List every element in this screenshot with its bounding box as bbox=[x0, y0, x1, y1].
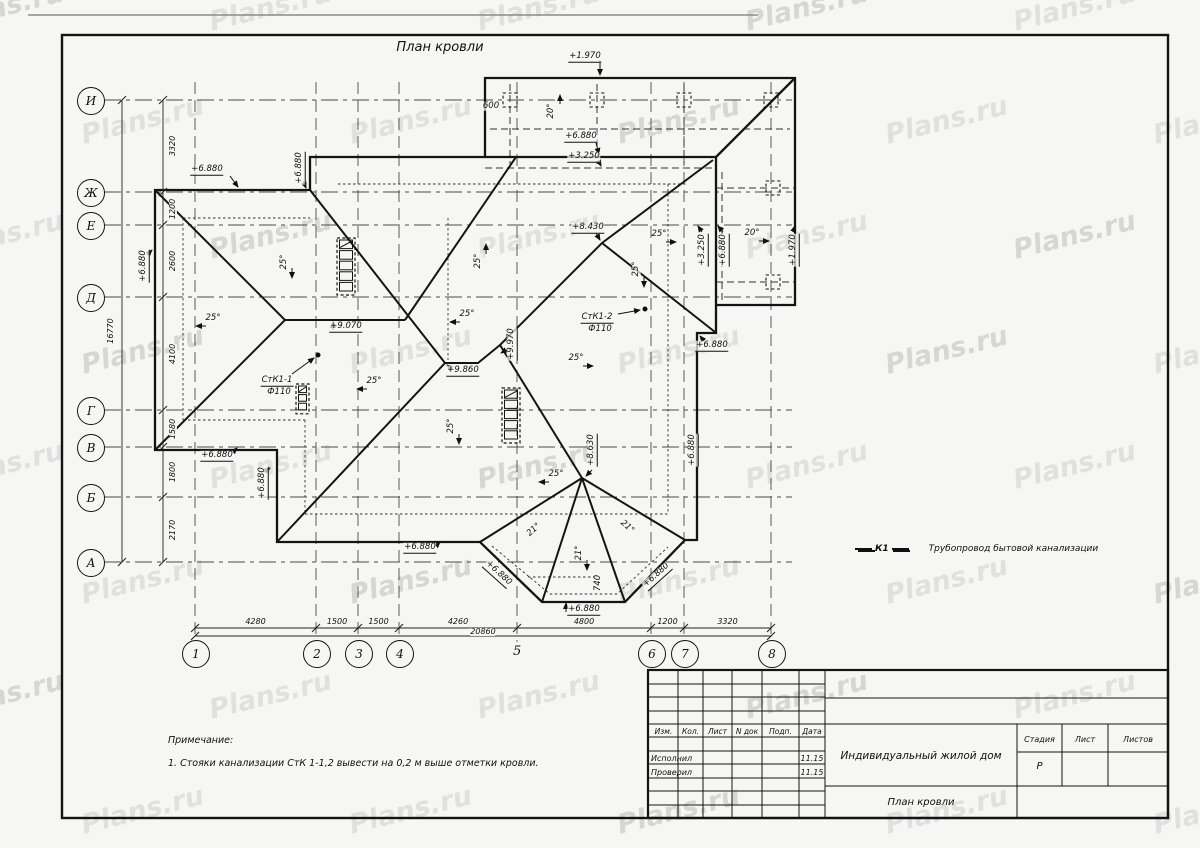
dim-col-1200: 1200 bbox=[657, 618, 677, 626]
tb-role-proveril: Проверил bbox=[651, 768, 692, 777]
notes-heading: Примечание: bbox=[168, 735, 588, 746]
axis-col-bubble-1: 1 bbox=[182, 640, 210, 668]
axis-row-bubble-Б: Б bbox=[77, 484, 105, 512]
roof-label-2-20°: 20° bbox=[547, 103, 556, 118]
axis-row-bubble-Е: Е bbox=[77, 212, 105, 240]
tb-date-2: 11.15 bbox=[799, 768, 825, 777]
roof-label-28-+1.970: +1.970 bbox=[789, 233, 800, 266]
roof-label-9-25°: 25° bbox=[280, 254, 289, 269]
roof-label-13-Ф110: Ф110 bbox=[267, 388, 291, 397]
tb-col-list: Лист bbox=[703, 727, 732, 736]
wall-dashed-lines bbox=[183, 184, 688, 594]
tb-sheets-header: Листов bbox=[1108, 735, 1168, 744]
axis-col-bubble-3: 3 bbox=[345, 640, 373, 668]
dim-row-1200: 1200 bbox=[169, 198, 177, 218]
terrace-columns bbox=[503, 93, 780, 289]
roof-label-12-СтК1-1: СтК1-1 bbox=[261, 376, 294, 387]
dim-col-4260: 4260 bbox=[448, 618, 468, 626]
roof-label-21-Ф110: Ф110 bbox=[588, 325, 612, 334]
roof-plan-drawing bbox=[0, 0, 1200, 848]
axis-row-bubble-В: В bbox=[77, 434, 105, 462]
roof-label-38-+6.880: +6.880 bbox=[567, 605, 600, 616]
tb-sheet-header: Лист bbox=[1062, 735, 1108, 744]
roof-label-22-+8.430: +8.430 bbox=[571, 223, 604, 234]
roof-label-29-+6.880: +6.880 bbox=[695, 341, 728, 352]
notes-block: Примечание: 1. Стояки канализации СтК 1-… bbox=[168, 735, 588, 769]
dim-col-1500: 1500 bbox=[368, 618, 388, 626]
tb-project-name: Индивидуальный жилой дом bbox=[825, 750, 1017, 762]
roof-label-7-+6.880: +6.880 bbox=[139, 249, 150, 282]
dim-row-3320: 3320 bbox=[169, 136, 177, 156]
legend-pipe-dash-icon bbox=[892, 548, 909, 550]
axis-col-bubble-4: 4 bbox=[386, 640, 414, 668]
dim-row-4100: 4100 bbox=[169, 343, 177, 363]
roof-label-4-+3.250: +3.250 bbox=[567, 152, 600, 163]
roof-label-10-25°: 25° bbox=[474, 253, 483, 268]
roof-label-32-25°: 25° bbox=[548, 470, 563, 479]
dim-col-4800: 4800 bbox=[574, 618, 594, 626]
tb-stage-value: Р bbox=[1017, 761, 1062, 772]
roof-label-23-25°: 25° bbox=[651, 230, 666, 239]
roof-label-25-20°: 20° bbox=[744, 229, 759, 238]
roof-label-30-+6.880: +6.880 bbox=[688, 433, 699, 466]
axis-row-bubble-И: И bbox=[77, 87, 105, 115]
roof-label-34-21°: 21° bbox=[575, 545, 584, 560]
axis-row-bubble-Д: Д bbox=[77, 284, 105, 312]
roof-label-14-25°: 25° bbox=[366, 377, 381, 386]
roof-label-8-25°: 25° bbox=[205, 314, 220, 323]
roof-label-24-25°: 25° bbox=[632, 261, 641, 276]
roof-label-15-25°: 25° bbox=[447, 418, 456, 433]
roof-label-3-+6.880: +6.880 bbox=[564, 132, 597, 143]
roof-label-20-СтК1-2: СтК1-2 bbox=[581, 313, 614, 324]
roof-label-40-+6.880: +6.880 bbox=[200, 451, 233, 462]
axis-col-label-5: 5 bbox=[513, 644, 521, 659]
sheet-frame bbox=[62, 35, 1168, 818]
dim-row-1800: 1800 bbox=[169, 462, 177, 482]
tb-drawing-title: План кровли bbox=[825, 797, 1017, 808]
page-title: План кровли bbox=[360, 40, 520, 55]
dim-row-1580: 1580 bbox=[169, 418, 177, 438]
tb-col-data: Дата bbox=[799, 727, 825, 736]
dim-col-total: 20860 bbox=[470, 628, 495, 636]
axis-col-bubble-6: 6 bbox=[638, 640, 666, 668]
tb-col-izm: Изм. bbox=[649, 727, 678, 736]
legend-text: Трубопровод бытовой канализации bbox=[929, 544, 1099, 554]
dim-col-1500: 1500 bbox=[327, 618, 347, 626]
roof-label-41-+6.880: +6.880 bbox=[258, 466, 269, 499]
roof-label-36-740: 740 bbox=[594, 575, 603, 591]
roof-label-16-+9.860: +9.860 bbox=[446, 366, 479, 377]
drawing-sheet: Plans.ruPlans.ruPlans.ruPlans.ruPlans.ru… bbox=[0, 0, 1200, 848]
chimney-symbol bbox=[502, 388, 520, 443]
axis-col-bubble-7: 7 bbox=[671, 640, 699, 668]
dim-col-3320: 3320 bbox=[717, 618, 737, 626]
axis-row-bubble-Ж: Ж bbox=[77, 179, 105, 207]
axis-col-bubble-8: 8 bbox=[758, 640, 786, 668]
axis-row-bubble-Г: Г bbox=[77, 397, 105, 425]
chimney-symbol bbox=[296, 384, 309, 414]
chimney-symbols bbox=[296, 238, 520, 443]
tb-col-kol: Кол. bbox=[678, 727, 703, 736]
axis-col-bubble-2: 2 bbox=[303, 640, 331, 668]
roof-label-0-+1.970: +1.970 bbox=[568, 52, 601, 63]
roof-label-17-+9.970: +9.970 bbox=[507, 327, 518, 360]
roof-label-31-+8.630: +8.630 bbox=[587, 433, 598, 466]
roof-label-27-+6.880: +6.880 bbox=[719, 233, 730, 266]
dim-col-4280: 4280 bbox=[245, 618, 265, 626]
roof-label-11-+9.070: +9.070 bbox=[329, 322, 362, 333]
axis-row-bubble-А: А bbox=[77, 549, 105, 577]
roof-label-5-+6.880: +6.880 bbox=[190, 165, 223, 176]
notes-item: 1. Стояки канализации СтК 1-1,2 вывести … bbox=[168, 758, 588, 769]
roof-label-6-+6.880: +6.880 bbox=[295, 151, 306, 184]
roof-label-18-25°: 25° bbox=[459, 310, 474, 319]
tb-stage-header: Стадия bbox=[1017, 735, 1062, 744]
legend: К1 Трубопровод бытовой канализации bbox=[855, 544, 1098, 554]
dim-row-2170: 2170 bbox=[169, 519, 177, 539]
chimney-symbol bbox=[337, 238, 355, 295]
legend-code: К1 bbox=[875, 544, 889, 554]
tb-col-podp: Подп. bbox=[762, 727, 799, 736]
roof-label-42-+6.880: +6.880 bbox=[403, 543, 436, 554]
roof-label-19-25°: 25° bbox=[568, 354, 583, 363]
tb-role-ispolnil: Исполнил bbox=[651, 754, 692, 763]
titleblock-lines bbox=[648, 670, 1168, 818]
legend-pipe-dash-icon bbox=[855, 548, 872, 550]
tb-col-ndok: N док bbox=[732, 727, 762, 736]
roof-label-1-600: 600 bbox=[483, 102, 499, 111]
dim-row-total: 16770 bbox=[107, 318, 115, 343]
roof-label-26-+3.250: +3.250 bbox=[698, 233, 709, 266]
tb-date-1: 11.15 bbox=[799, 754, 825, 763]
roof-hips-ridges bbox=[155, 157, 715, 602]
dim-row-2600: 2600 bbox=[169, 251, 177, 271]
